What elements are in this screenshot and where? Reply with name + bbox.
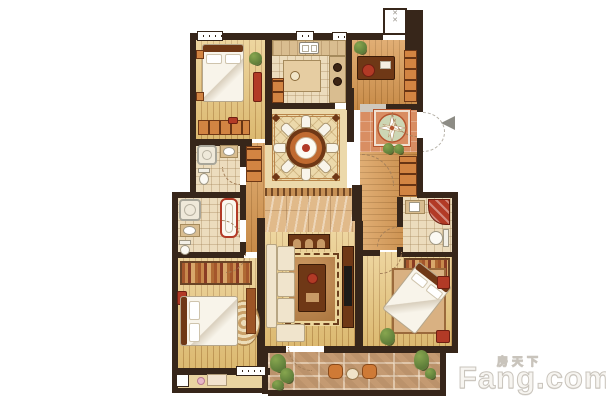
bed-headboard: [181, 297, 187, 345]
wall-right-lower: [452, 197, 458, 352]
vanity-table: [207, 374, 227, 386]
wall-bath-right-bottom: [397, 252, 452, 257]
dining-chair: [326, 143, 339, 153]
coffee-table: [298, 264, 326, 312]
stove-burner: [333, 77, 342, 86]
wall-living-bottom-b: [324, 346, 355, 353]
shower-stall: [197, 145, 217, 165]
plant: [354, 41, 367, 54]
floor-motif: [272, 173, 280, 181]
console-arch: [317, 239, 325, 248]
floorplan-image: ✕ ✕: [0, 0, 606, 404]
kitchen-sink: [299, 42, 319, 54]
wall-balcony-right: [440, 352, 446, 394]
flue-box: [176, 374, 189, 387]
kitchen-island: [283, 60, 321, 92]
bath-sink: [183, 226, 196, 235]
dresser-decor: [228, 117, 238, 124]
shower-drain: [184, 204, 196, 216]
stove-burner: [333, 63, 342, 72]
plant: [425, 368, 436, 379]
wall-corridor-bedroom: [362, 250, 380, 256]
console-arch: [305, 239, 313, 248]
floor-motif: [332, 173, 340, 181]
sofa-chaise: [276, 324, 305, 342]
balcony-table: [346, 368, 359, 380]
nightstand: [196, 50, 204, 59]
dining-chair: [301, 168, 311, 181]
toilet-tank: [443, 229, 449, 247]
watermark-en: Fang.com: [458, 360, 606, 396]
dining-centerpiece: [302, 144, 310, 152]
table-book: [306, 293, 319, 302]
wall-bath-ul-right-b: [240, 185, 246, 220]
toilet-bowl: [199, 173, 209, 185]
sofa-cushion: [277, 246, 295, 271]
bed-headboard: [203, 45, 243, 52]
island-plate: [290, 71, 300, 81]
wall-kitchen-bottom: [265, 103, 335, 109]
study-bookshelf: [404, 50, 417, 102]
hallway-decor-band: [265, 188, 355, 196]
bed-pillow: [206, 54, 222, 64]
dining-chair: [273, 143, 286, 153]
kitchen-counter-side: [329, 56, 346, 103]
nightstand: [196, 92, 204, 101]
bath-sink: [409, 202, 420, 212]
shower-drain: [202, 150, 212, 160]
wall-bedroom-kitchen: [265, 33, 272, 145]
shower-stall: [179, 199, 201, 221]
bath-sink: [223, 147, 235, 156]
table-tray: [307, 273, 318, 284]
fridge: [272, 78, 284, 103]
plant: [380, 328, 395, 345]
floor-motif: [332, 114, 340, 122]
wall-bath-divider: [172, 192, 246, 198]
toilet-bowl: [429, 231, 443, 245]
wall-pillar: [352, 185, 362, 221]
plant: [272, 380, 284, 390]
toilet-bowl: [180, 245, 190, 255]
wall-dining-right: [347, 88, 354, 142]
bench: [253, 72, 262, 102]
sofa-back: [266, 244, 277, 328]
plant: [394, 144, 404, 154]
entry-arrow: [441, 116, 455, 130]
sofa-cushion: [277, 298, 295, 323]
bed-bottom-left: [180, 296, 238, 346]
shaft-mark: ✕: [385, 17, 405, 24]
sink-basin: [302, 45, 309, 52]
balcony-chair: [328, 364, 343, 379]
bed-pillow: [189, 323, 200, 342]
desk-paper: [380, 61, 391, 69]
utility-shaft: ✕ ✕: [383, 8, 407, 35]
sink-basin: [311, 45, 317, 52]
plant: [383, 143, 394, 154]
balcony-chair: [362, 364, 377, 379]
dining-set: [282, 124, 330, 172]
floor-motif: [272, 114, 280, 122]
sofa-cushion: [277, 272, 295, 297]
dining-chair: [301, 115, 311, 128]
red-armchair: [437, 276, 450, 289]
wall-living-right: [355, 221, 363, 346]
plant: [414, 350, 429, 370]
plant: [249, 52, 262, 65]
study-chair: [362, 64, 375, 77]
wall-right-upper: [417, 55, 423, 112]
sideboard: [246, 146, 262, 182]
vanity-stool: [197, 377, 205, 385]
shoe-cabinet: [399, 156, 417, 196]
shaft-mark: ✕: [385, 10, 405, 17]
bed-top-left: [202, 44, 244, 102]
bed-pillow: [189, 301, 200, 320]
window-bedroom-bl: [236, 366, 266, 376]
bed-pillow: [225, 54, 241, 64]
tall-dresser: [246, 288, 256, 334]
wall-bath-right-left-a: [397, 197, 403, 227]
tv: [344, 266, 352, 306]
dresser-top-left: [198, 120, 250, 135]
red-ottoman: [436, 330, 450, 343]
wall-balcony-bottom: [268, 390, 446, 396]
window-top-left: [197, 31, 223, 41]
wall-bay-bottom: [172, 388, 268, 393]
